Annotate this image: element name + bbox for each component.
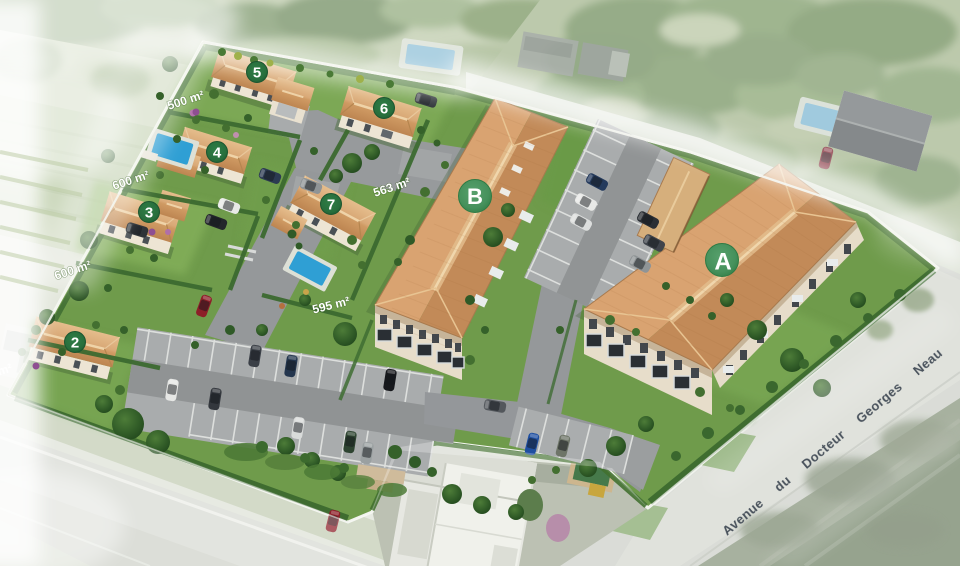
svg-text:7: 7 (327, 197, 335, 214)
svg-text:B: B (467, 184, 483, 209)
svg-text:3: 3 (145, 205, 153, 222)
svg-text:5: 5 (253, 65, 261, 82)
svg-text:2: 2 (71, 335, 79, 352)
svg-text:A: A (714, 249, 731, 276)
svg-text:6: 6 (380, 101, 388, 118)
svg-text:4: 4 (213, 145, 222, 162)
